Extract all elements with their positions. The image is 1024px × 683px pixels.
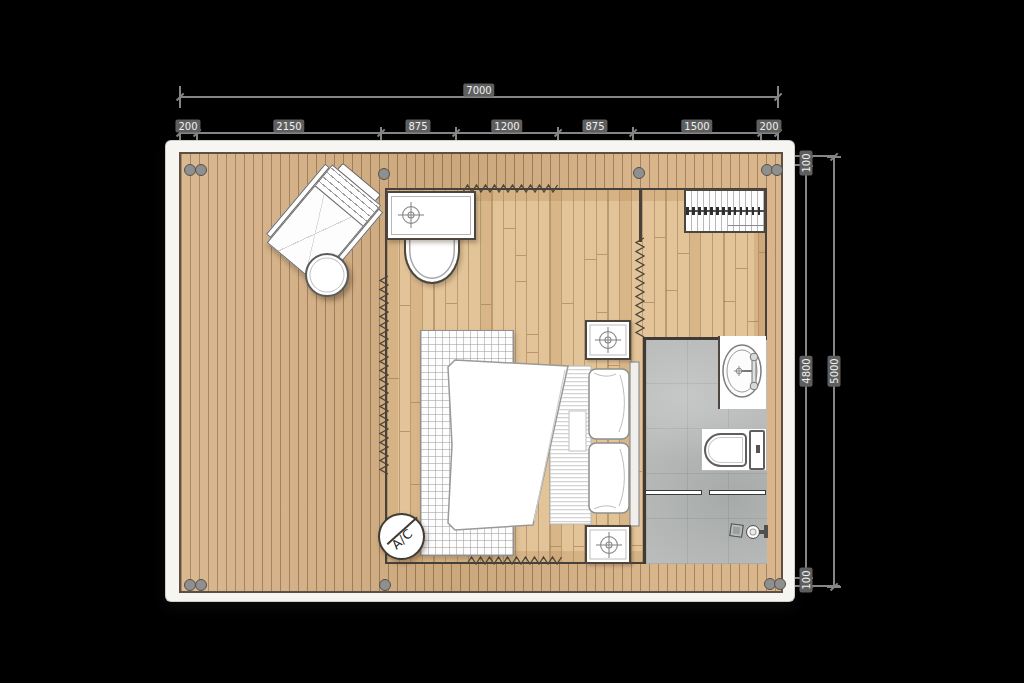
deck-post: [633, 167, 645, 179]
tent-canvas-left-icon: [379, 276, 389, 474]
floor-plank-joint: [516, 255, 527, 256]
floor-plank-joint: [388, 378, 399, 379]
wardrobe-hangers-icon: [686, 207, 764, 215]
dimension-label: 875: [405, 120, 430, 133]
floor-plank-joint: [504, 228, 515, 229]
folded-towel: [569, 411, 586, 451]
nightstand: [585, 525, 631, 564]
floor-plank-joint: [597, 254, 608, 255]
dimension-label: 4800: [800, 355, 813, 386]
floor-plank-joint: [562, 303, 573, 304]
wardrobe-shelf: [728, 225, 764, 227]
floor-plank-joint: [678, 253, 689, 254]
dimension-label-overall-width: 7000: [463, 84, 494, 97]
clothes-wardrobe: [684, 189, 766, 233]
floor-drain-icon: [729, 523, 744, 538]
vanity-desk: [386, 191, 476, 240]
glass-partition: [709, 490, 766, 495]
deck-post: [771, 164, 783, 176]
floor-plank-joint: [666, 290, 677, 291]
floor-plank-joint: [597, 312, 608, 313]
floor-plank-joint: [748, 321, 759, 322]
dimension-label: 2150: [273, 120, 304, 133]
deck-post: [379, 579, 391, 591]
flush-button: [756, 445, 760, 453]
deck-platform: A/C: [179, 152, 783, 593]
deck-post: [378, 168, 390, 180]
lamp-symbol-icon: [594, 326, 622, 354]
dimension-label: 200: [175, 120, 200, 133]
deck-post: [195, 579, 207, 591]
nightstand: [585, 320, 631, 360]
dimension-label: 1500: [681, 120, 712, 133]
glass-partition: [645, 490, 702, 495]
dimension-label: 100: [800, 567, 813, 592]
toilet-bowl: [704, 433, 747, 467]
pillow: [589, 369, 629, 439]
washbasin-counter: [718, 336, 766, 409]
floor-plank-joint: [516, 281, 527, 282]
deck-post: [774, 578, 786, 590]
floor-plank-joint: [655, 237, 666, 238]
floor-plank-joint: [724, 301, 735, 302]
partition-wall: [639, 188, 642, 242]
floorplan-canvas: 7000 200 2150 875 1200 875 1500 200 100 …: [0, 0, 1024, 683]
ac-unit: A/C: [378, 513, 425, 560]
dimension-label-overall-height: 5000: [828, 355, 841, 386]
washbasin-icon: [720, 336, 766, 407]
floor-plank-joint: [736, 268, 747, 269]
lamp-symbol-icon: [595, 531, 623, 559]
shower-head-icon: [746, 525, 760, 539]
bed-headboard: [630, 362, 639, 526]
shower-valve: [764, 525, 768, 538]
dimension-label: 1200: [491, 120, 522, 133]
toilet: [701, 428, 767, 471]
floor-plank-joint: [400, 305, 411, 306]
floor-plank-joint: [585, 259, 596, 260]
floor-plank-joint: [400, 431, 411, 432]
round-side-table: [305, 253, 349, 297]
lamp-symbol-icon: [397, 201, 425, 229]
pillow: [589, 443, 629, 513]
dimension-label: 200: [756, 120, 781, 133]
tent-canvas-rear-icon: [467, 556, 562, 565]
ac-label: A/C: [388, 526, 415, 553]
toilet-tank: [749, 430, 765, 470]
floor-plank-joint: [446, 303, 457, 304]
tent-canvas-divider-icon: [635, 238, 645, 339]
dimension-label: 875: [582, 120, 607, 133]
deck-post: [195, 164, 207, 176]
tent-canvas-front-icon: [463, 184, 558, 193]
dimension-label: 100: [800, 150, 813, 175]
